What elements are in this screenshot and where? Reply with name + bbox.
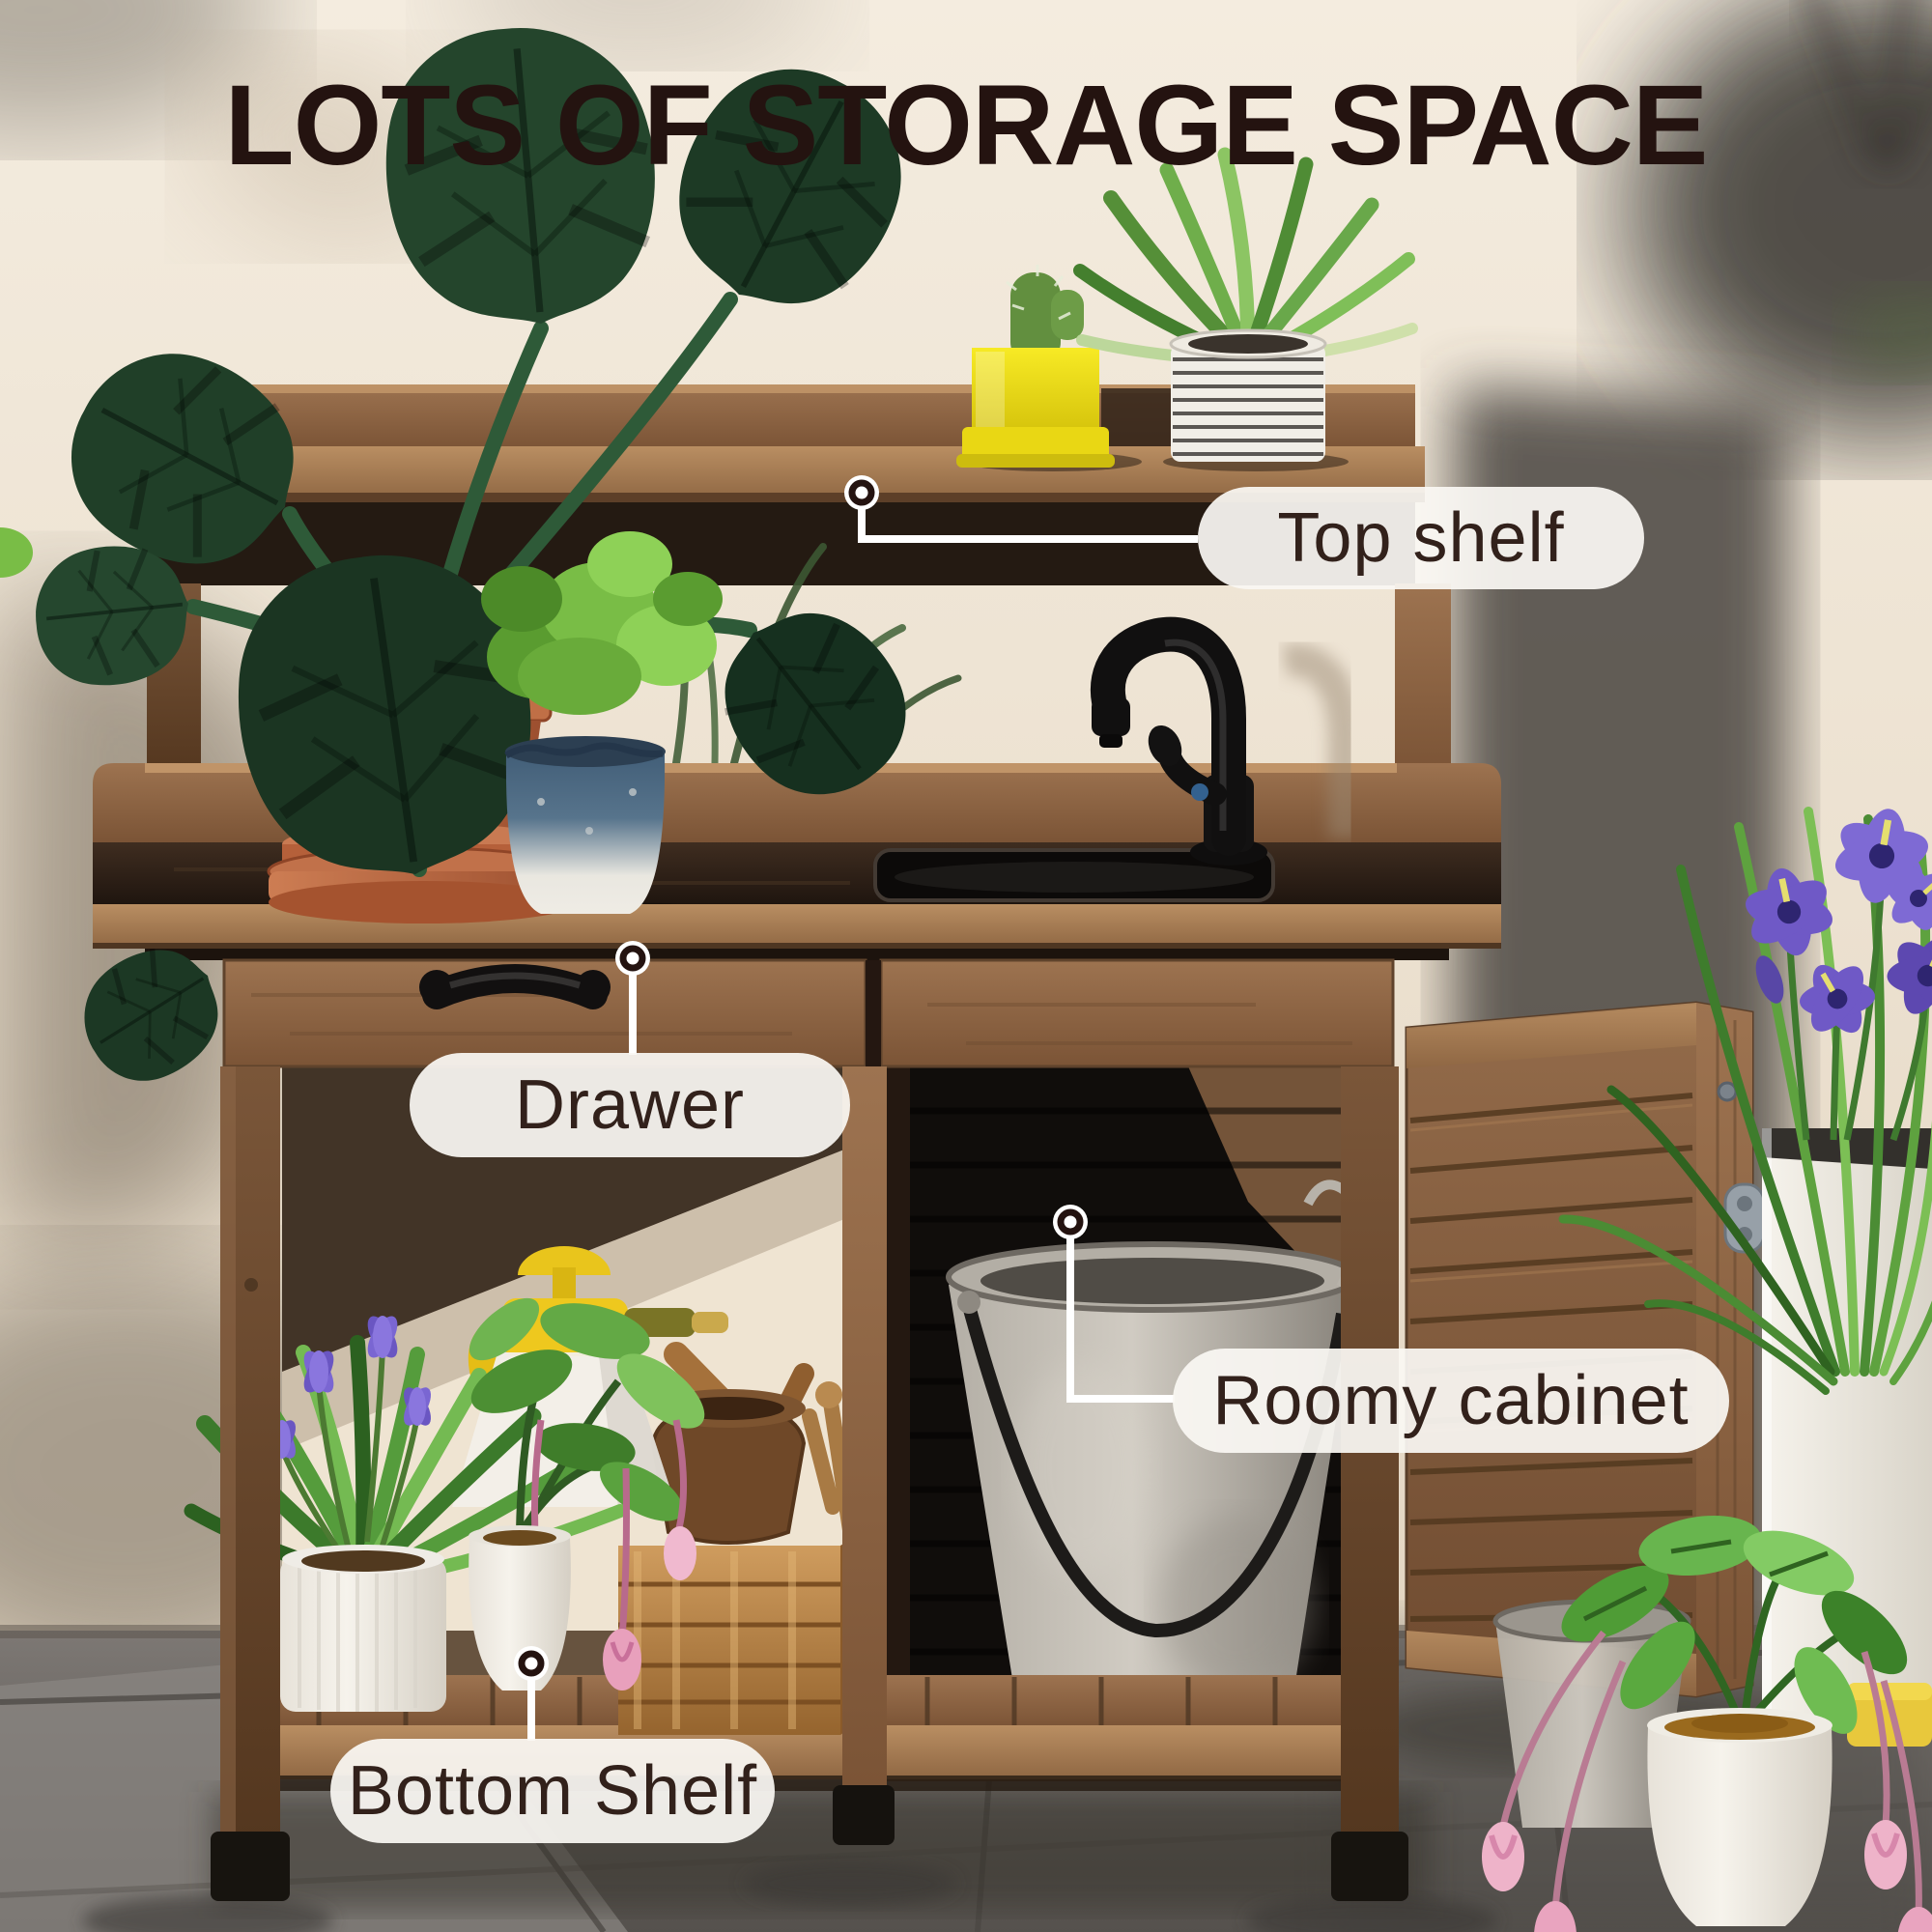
callout-dot-top-shelf	[844, 475, 879, 510]
right-leg	[1341, 1066, 1399, 1839]
potting-bench-photo	[0, 0, 1932, 1932]
hutch-right-post	[1395, 583, 1451, 773]
center-post	[842, 1066, 887, 1789]
page-title: LOTS OF STORAGE SPACE	[0, 64, 1932, 189]
foot-cap	[1331, 1832, 1408, 1901]
door-screw	[1719, 1083, 1736, 1100]
right-side-splash	[1395, 763, 1501, 842]
callout-dot-drawer	[615, 941, 650, 976]
drawer-front-right	[881, 960, 1393, 1066]
callout-dot-bottom-shelf	[514, 1646, 549, 1681]
drawer-band	[224, 960, 1393, 1066]
foot-cap	[211, 1832, 290, 1901]
callout-label-bottom-shelf: Bottom Shelf	[330, 1739, 775, 1843]
callout-label-roomy-cabinet: Roomy cabinet	[1173, 1349, 1729, 1453]
foot-cap	[833, 1785, 895, 1845]
white-round-pot	[1647, 1716, 1832, 1926]
product-infographic: LOTS OF STORAGE SPACE Top shelf Drawer R…	[0, 0, 1932, 1932]
callout-label-drawer: Drawer	[410, 1053, 850, 1157]
callout-dot-roomy-cabinet	[1053, 1205, 1088, 1239]
callout-label-top-shelf: Top shelf	[1198, 487, 1644, 589]
